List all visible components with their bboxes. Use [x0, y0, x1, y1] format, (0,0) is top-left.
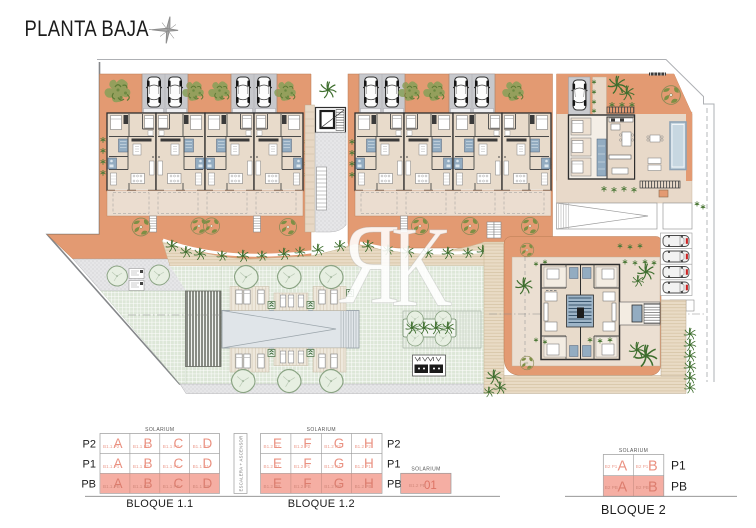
svg-text:B1.2 P1: B1.2 P1 — [264, 464, 281, 469]
svg-text:B1.2 P1: B1.2 P1 — [294, 464, 311, 469]
svg-text:B1.1 P2: B1.1 P2 — [133, 444, 150, 449]
svg-text:B1.1 PB: B1.1 PB — [103, 484, 120, 489]
svg-text:B1.1 PB: B1.1 PB — [133, 484, 150, 489]
svg-text:B1.2 P1: B1.2 P1 — [355, 464, 372, 469]
svg-text:K: K — [391, 203, 452, 331]
svg-text:SOLARIUM: SOLARIUM — [307, 427, 336, 433]
svg-text:B2 P1: B2 P1 — [605, 464, 618, 469]
svg-text:B1.2 PB: B1.2 PB — [294, 484, 311, 489]
svg-text:B1.2 P2: B1.2 P2 — [264, 444, 281, 449]
svg-text:P1: P1 — [387, 459, 400, 471]
svg-text:BLOQUE 1.2: BLOQUE 1.2 — [288, 498, 355, 510]
svg-text:B: B — [648, 459, 658, 475]
svg-text:B1.1 PB: B1.1 PB — [193, 484, 210, 489]
svg-text:PLANTA BAJA: PLANTA BAJA — [25, 18, 150, 42]
svg-text:B1.1 P1: B1.1 P1 — [103, 464, 120, 469]
svg-text:PB: PB — [671, 480, 687, 494]
svg-text:P1: P1 — [671, 459, 686, 473]
svg-text:B1.2 P1: B1.2 P1 — [324, 464, 341, 469]
svg-text:A: A — [618, 480, 628, 496]
svg-text:B1.2 PB: B1.2 PB — [355, 484, 372, 489]
svg-text:ESCALERA + ASCENSOR: ESCALERA + ASCENSOR — [239, 436, 244, 492]
svg-text:PB: PB — [387, 479, 402, 491]
svg-text:B1.1 P1: B1.1 P1 — [193, 464, 210, 469]
svg-text:B1.2 P2: B1.2 P2 — [324, 444, 341, 449]
svg-text:B1.1 P2: B1.1 P2 — [193, 444, 210, 449]
svg-text:P2: P2 — [83, 439, 96, 451]
svg-text:B2 P1: B2 P1 — [636, 464, 649, 469]
svg-text:P2: P2 — [387, 439, 400, 451]
svg-text:B1.1 P1: B1.1 P1 — [163, 464, 180, 469]
svg-text:B1.1 P2: B1.1 P2 — [103, 444, 120, 449]
svg-text:B1.1 P2: B1.1 P2 — [163, 444, 180, 449]
svg-text:B1.1 PB: B1.1 PB — [163, 484, 180, 489]
svg-text:B1.2 P2: B1.2 P2 — [355, 444, 372, 449]
svg-text:B1.1 P1: B1.1 P1 — [133, 464, 150, 469]
svg-text:SOLARIUM: SOLARIUM — [411, 467, 440, 473]
svg-text:B1.2 PB: B1.2 PB — [264, 484, 281, 489]
svg-text:B: B — [648, 480, 658, 496]
svg-text:B2 PB: B2 PB — [636, 485, 649, 490]
svg-text:BLOQUE 1.1: BLOQUE 1.1 — [126, 498, 193, 510]
svg-text:BLOQUE 2: BLOQUE 2 — [601, 503, 666, 517]
svg-text:PB: PB — [81, 479, 96, 491]
svg-text:B1.2 PB: B1.2 PB — [409, 483, 426, 488]
svg-text:B1.2 P2: B1.2 P2 — [294, 444, 311, 449]
svg-text:P1: P1 — [83, 459, 96, 471]
svg-text:SOLARIUM: SOLARIUM — [145, 427, 174, 433]
svg-text:B2 PB: B2 PB — [605, 485, 618, 490]
svg-text:B1.2 PB: B1.2 PB — [324, 484, 341, 489]
svg-text:01: 01 — [424, 480, 437, 492]
svg-text:SOLARIUM: SOLARIUM — [619, 448, 648, 454]
svg-text:A: A — [618, 459, 628, 475]
